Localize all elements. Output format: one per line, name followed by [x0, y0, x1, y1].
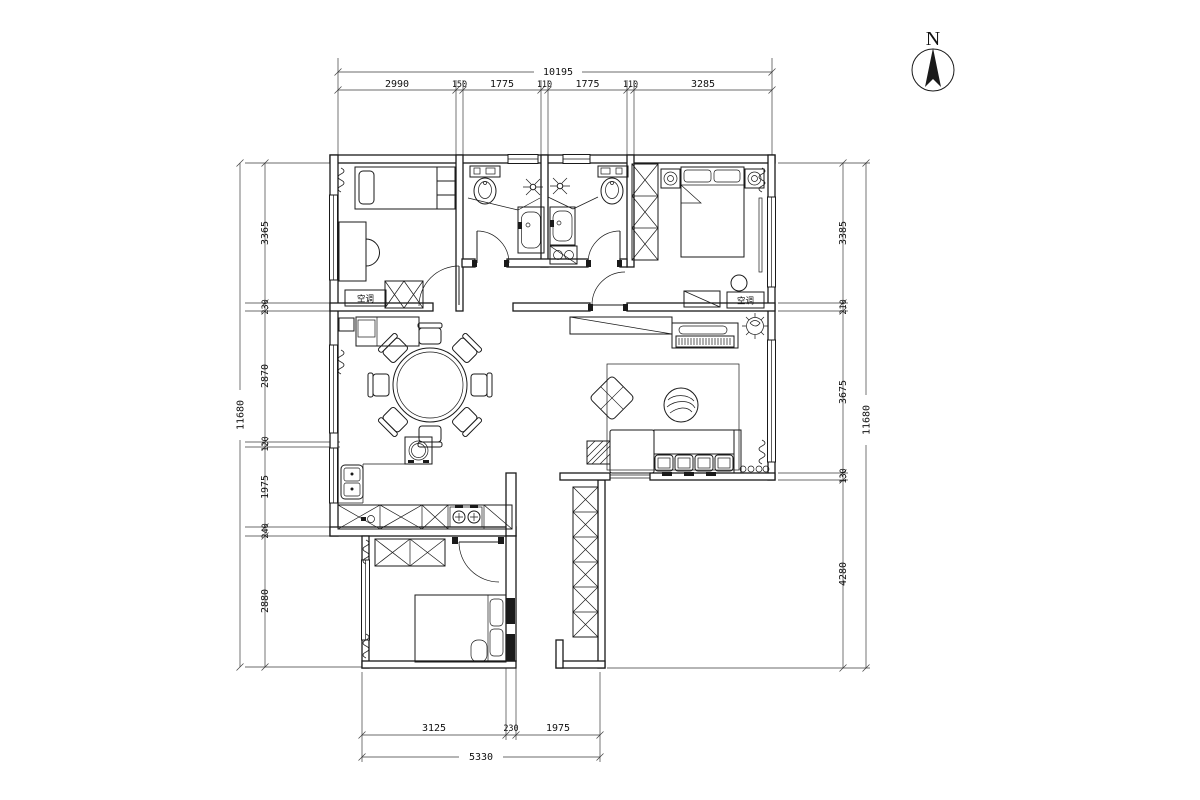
single-bed	[355, 167, 455, 209]
radiator-coil	[759, 440, 765, 464]
window-bath1-top	[508, 155, 538, 164]
window-dining-left	[330, 345, 338, 433]
double-bed	[681, 167, 744, 257]
window-master-right	[768, 197, 776, 287]
switch-box	[339, 318, 354, 331]
window-study-left	[330, 195, 338, 280]
dim-top-overall: 10195	[543, 67, 573, 78]
room-bath-1	[468, 166, 544, 253]
dim-right-3: 3675	[838, 380, 849, 404]
floorplan-drawing: 10195 2990 150 1775 110 1775 110 3285 33…	[0, 0, 1200, 800]
door-bath1	[472, 231, 509, 267]
floorplan-canvas: 10195 2990 150 1775 110 1775 110 3285 33…	[0, 0, 1200, 800]
gas-stove	[450, 505, 482, 527]
door-bedroom2	[452, 537, 504, 582]
room-bedroom-2	[363, 539, 515, 662]
vanity-1	[518, 207, 544, 253]
dining-table	[393, 348, 467, 422]
dim-top-2: 150	[452, 80, 467, 90]
window-bedroom2-left	[362, 560, 370, 640]
walls	[330, 155, 775, 668]
dim-right-overall: 11680	[862, 405, 873, 435]
compass: N	[912, 28, 954, 91]
dim-left-6: 240	[261, 523, 271, 538]
nightstand-left	[661, 169, 680, 188]
dimension-bottom: 3125 230 1975 5330	[359, 665, 604, 763]
plant	[742, 313, 768, 339]
nightstand-right	[745, 169, 764, 188]
dim-left-5: 1975	[260, 475, 271, 499]
curtain	[759, 198, 762, 272]
dim-bottom-3: 1975	[546, 723, 570, 734]
dim-right-1: 3385	[838, 221, 849, 245]
dim-bottom-1: 3125	[422, 723, 446, 734]
sofa	[610, 430, 741, 476]
toilet-2	[598, 166, 628, 204]
counter-island	[405, 437, 432, 464]
dimension-left: 3365 230 2870 120 1975 240 2880 11680	[234, 160, 365, 671]
north-label: N	[926, 28, 940, 50]
room-study: 空调	[338, 167, 455, 308]
wall-fill	[506, 598, 515, 624]
dimension-top: 10195 2990 150 1775 110 1775 110 3285	[335, 58, 776, 160]
window-living-right	[768, 340, 776, 462]
hall-cabinet	[573, 487, 598, 637]
dim-top-4: 110	[537, 80, 552, 90]
dim-bottom-overall: 5330	[469, 752, 493, 763]
radiator-coil	[338, 168, 344, 192]
window-bath2-top	[563, 155, 590, 164]
stool	[731, 275, 747, 291]
wardrobe-bedroom2	[375, 539, 445, 566]
shower-head-2	[550, 178, 570, 194]
dim-left-3: 2870	[260, 364, 271, 388]
wall-fill	[506, 634, 515, 661]
sideboard	[356, 317, 419, 346]
dim-right-4: 130	[839, 468, 849, 483]
radiator	[740, 466, 769, 472]
armchair	[589, 375, 634, 420]
shower-head-1	[523, 179, 543, 195]
dim-right-2: 210	[839, 299, 849, 314]
dim-top-3: 1775	[490, 79, 514, 90]
dim-left-1: 3365	[260, 221, 271, 245]
room-dining	[338, 317, 492, 447]
window-kitchen-left	[330, 448, 338, 503]
dim-top-5: 1775	[575, 79, 599, 90]
dim-top-1: 2990	[385, 79, 409, 90]
dimension-right: 3385 210 3675 130 4280 11680	[607, 160, 873, 672]
north-needle	[925, 48, 941, 87]
kitchen-sink	[341, 465, 363, 499]
counter-edge	[338, 464, 405, 503]
dim-bottom-2: 230	[503, 724, 518, 734]
windows	[330, 155, 776, 641]
dining-chairs	[368, 323, 492, 447]
side-table	[587, 441, 610, 464]
tv-cabinet	[570, 317, 672, 334]
dim-left-7: 2880	[260, 589, 271, 613]
door-master-bedroom	[588, 272, 628, 311]
door-bath2	[586, 231, 622, 267]
wardrobe-master	[632, 164, 658, 260]
bed-2	[415, 595, 506, 662]
door-study	[419, 266, 459, 306]
ac-label-master: 空调	[737, 296, 754, 307]
dim-left-overall: 11680	[236, 400, 247, 430]
room-master-bedroom: 空调	[632, 164, 765, 308]
desk	[339, 222, 380, 281]
kettle	[361, 516, 375, 523]
radiator-coil	[338, 350, 344, 374]
coffee-table	[664, 388, 698, 422]
dim-left-2: 230	[261, 299, 271, 314]
dim-left-4: 120	[261, 436, 271, 451]
ac-label-study: 空调	[357, 294, 374, 305]
dim-top-6: 110	[623, 80, 638, 90]
room-living	[570, 313, 769, 476]
toilet-1	[470, 166, 500, 204]
shower-screen-1	[468, 198, 540, 210]
piano	[672, 323, 738, 348]
dim-right-5: 4280	[838, 562, 849, 586]
room-bath-2	[548, 166, 628, 264]
vanity-2	[550, 207, 575, 245]
room-kitchen	[338, 437, 512, 529]
dim-top-7: 3285	[691, 79, 715, 90]
